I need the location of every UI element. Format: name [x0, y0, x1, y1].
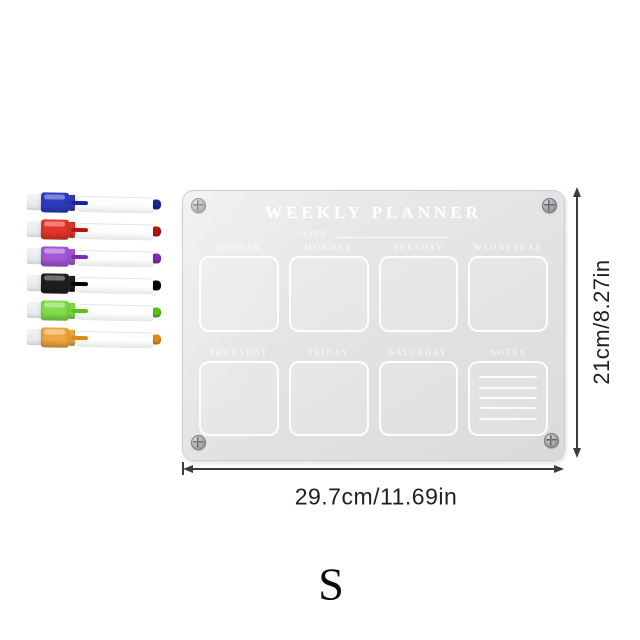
marker-eraser: [27, 329, 42, 345]
planner-row-1: SUNDAY MONDAY TUESDAY WEDNESDAY: [199, 241, 548, 332]
marker-cap: [41, 192, 69, 213]
day-label: WEDNESDAY: [468, 241, 548, 254]
weekly-planner-board: WEEKLY PLANNER DATE SUNDAY MONDAY TUESDA…: [182, 190, 565, 461]
notes-lines: [479, 368, 537, 428]
notes-cell: NOTES: [468, 346, 548, 436]
day-writing-box: [379, 361, 459, 436]
marker-cap: [41, 327, 69, 348]
marker-tail: [153, 199, 161, 209]
marker-clip: [71, 255, 88, 259]
marker-clip: [71, 309, 88, 313]
marker-set: [27, 192, 167, 354]
day-cell-tuesday: TUESDAY: [379, 241, 459, 332]
day-writing-box: [199, 361, 279, 436]
marker-tail: [153, 280, 161, 290]
notes-label: NOTES: [468, 346, 548, 359]
day-cell-friday: FRIDAY: [289, 346, 369, 436]
screw-icon: [191, 435, 206, 450]
marker-cap: [41, 219, 69, 240]
date-label: DATE: [300, 229, 327, 238]
day-writing-box: [199, 256, 279, 332]
marker-red: [27, 219, 161, 242]
day-cell-sunday: SUNDAY: [199, 241, 279, 332]
marker-tail: [153, 253, 161, 263]
marker-black: [27, 273, 161, 296]
marker-tail: [153, 226, 161, 236]
date-fill-line: [335, 228, 447, 238]
size-variant-label: S: [318, 558, 344, 611]
marker-eraser: [27, 221, 42, 237]
marker-clip: [71, 228, 88, 232]
height-dimension-line: [576, 196, 578, 449]
height-dimension-label: 21cm/8.27in: [589, 259, 615, 384]
marker-clip: [71, 201, 88, 205]
day-label: SUNDAY: [199, 241, 279, 254]
width-dimension-line: [190, 468, 557, 470]
marker-eraser: [27, 248, 42, 264]
day-label: SATURDAY: [379, 346, 459, 359]
marker-cap: [41, 273, 69, 294]
marker-tail: [153, 334, 161, 344]
day-writing-box: [379, 256, 459, 332]
day-cell-saturday: SATURDAY: [379, 346, 459, 436]
marker-purple: [27, 246, 161, 269]
marker-tail: [153, 307, 161, 317]
marker-eraser: [27, 275, 42, 291]
marker-cap: [41, 300, 69, 321]
marker-eraser: [27, 194, 42, 210]
day-label: TUESDAY: [379, 241, 459, 254]
day-cell-monday: MONDAY: [289, 241, 369, 332]
width-dimension-label: 29.7cm/11.69in: [295, 484, 458, 511]
board-title: WEEKLY PLANNER: [183, 203, 564, 223]
marker-clip: [71, 282, 88, 286]
day-label: FRIDAY: [289, 346, 369, 359]
notes-writing-box: [468, 361, 548, 436]
arrow-up-icon: [573, 187, 581, 197]
day-cell-wednesday: WEDNESDAY: [468, 241, 548, 332]
marker-eraser: [27, 302, 42, 318]
day-label: MONDAY: [289, 241, 369, 254]
day-writing-box: [289, 256, 369, 332]
arrow-left-icon: [183, 465, 193, 473]
marker-cap: [41, 246, 69, 267]
day-writing-box: [289, 361, 369, 436]
marker-clip: [71, 336, 88, 340]
planner-row-2: THURSDAY FRIDAY SATURDAY NOTES: [199, 346, 548, 436]
date-row: DATE: [183, 227, 564, 238]
day-label: THURSDAY: [199, 346, 279, 359]
day-writing-box: [468, 256, 548, 332]
day-cell-thursday: THURSDAY: [199, 346, 279, 436]
arrow-down-icon: [573, 448, 581, 458]
arrow-right-icon: [554, 465, 564, 473]
marker-blue: [27, 192, 161, 215]
marker-green: [27, 300, 161, 323]
marker-orange: [27, 327, 161, 350]
